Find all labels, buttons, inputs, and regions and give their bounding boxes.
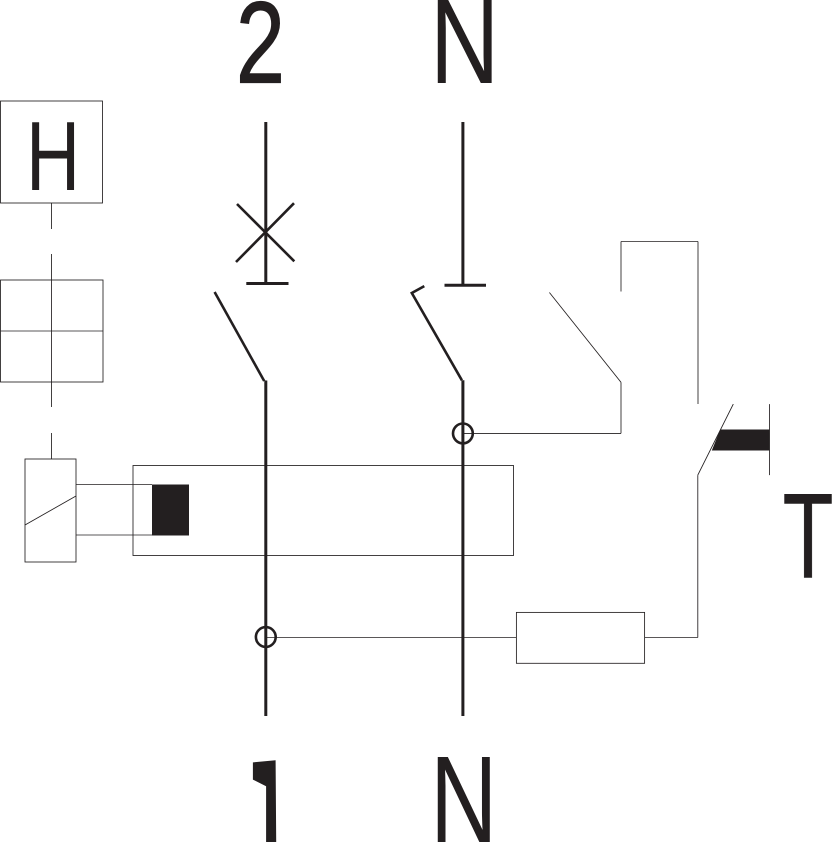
svg-text:N: N bbox=[430, 731, 497, 842]
svg-text:T: T bbox=[783, 468, 834, 603]
svg-text:N: N bbox=[430, 0, 500, 109]
svg-text:H: H bbox=[26, 101, 80, 211]
svg-text:2: 2 bbox=[236, 0, 285, 107]
